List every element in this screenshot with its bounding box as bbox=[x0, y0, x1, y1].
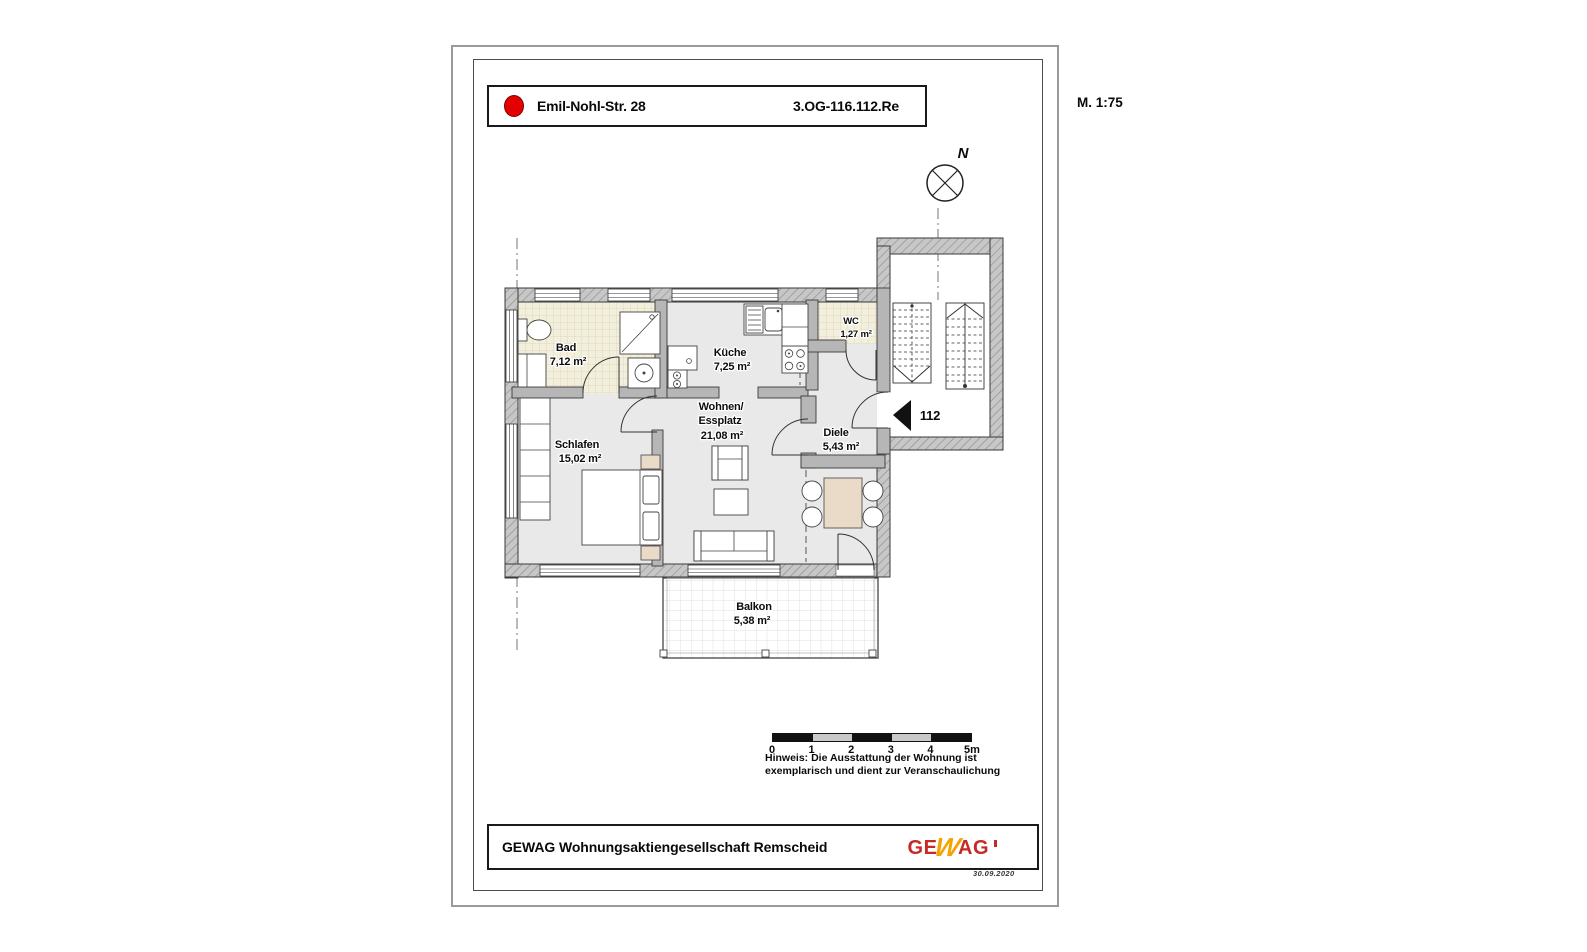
sofa bbox=[694, 531, 774, 561]
wall-apartment-stairwell-b bbox=[877, 428, 890, 454]
kitchen-burners bbox=[668, 370, 687, 388]
window-bottom-wohnen bbox=[688, 565, 780, 576]
balkon-area: 5,38 m² bbox=[734, 615, 771, 627]
diele-area: 5,43 m² bbox=[823, 441, 860, 453]
scale-segment bbox=[773, 734, 813, 741]
street-address: Emil-Nohl-Str. 28 bbox=[537, 98, 646, 114]
window-left-bad bbox=[506, 310, 517, 382]
wall-kueche-bottom-a bbox=[667, 387, 719, 398]
company-name: GEWAG Wohnungsaktiengesellschaft Remsche… bbox=[502, 839, 827, 855]
nightstand bbox=[641, 546, 660, 560]
scale-segment bbox=[892, 734, 932, 741]
stove bbox=[782, 346, 808, 373]
washing-machine bbox=[628, 358, 660, 388]
shower bbox=[620, 312, 660, 354]
window-top-3 bbox=[672, 289, 778, 301]
stairwell-wall-right bbox=[990, 238, 1003, 450]
wohnen-area: 21,08 m² bbox=[701, 430, 744, 442]
bad-label: Bad bbox=[556, 342, 576, 354]
window-top-1 bbox=[535, 289, 580, 301]
title-block: Emil-Nohl-Str. 28 3.OG-116.112.Re bbox=[487, 85, 927, 127]
diele-label: Diele bbox=[823, 427, 848, 439]
stairwell-wall-top bbox=[877, 238, 1003, 254]
bathroom-sink bbox=[518, 354, 546, 387]
logo-text-ag: AG bbox=[958, 837, 989, 859]
unit-code: 3.OG-116.112.Re bbox=[793, 98, 899, 114]
balcony-door-opening bbox=[836, 565, 874, 576]
kitchen-sink bbox=[744, 304, 784, 335]
stairwell bbox=[893, 303, 984, 389]
scale-bar-track bbox=[772, 733, 972, 742]
stair-flight-right bbox=[946, 303, 984, 389]
schlafen-area: 15,02 m² bbox=[559, 453, 602, 465]
scale-segment bbox=[813, 734, 853, 741]
window-top-2 bbox=[608, 289, 650, 301]
balcony-post bbox=[869, 650, 876, 657]
footer: GEWAG Wohnungsaktiengesellschaft Remsche… bbox=[487, 824, 1039, 870]
floor-plan-sheet: Emil-Nohl-Str. 28 3.OG-116.112.Re M. 1:7… bbox=[0, 0, 1587, 952]
wall-bad-bottom-a bbox=[512, 387, 583, 398]
wall-apartment-stairwell-a bbox=[877, 288, 890, 392]
disclaimer-note: Hinweis: Die Ausstattung der Wohnung ist… bbox=[765, 752, 1000, 778]
wall-diele-bottom bbox=[801, 455, 885, 468]
window-bottom-schlafen bbox=[540, 565, 640, 576]
window-left-schlafen bbox=[506, 424, 517, 518]
north-label: N bbox=[958, 145, 970, 162]
nightstand bbox=[641, 455, 660, 469]
bad-area: 7,12 m² bbox=[550, 356, 587, 368]
apartment-number-label: 112 bbox=[920, 408, 940, 423]
wc-area: 1,27 m² bbox=[840, 329, 871, 340]
double-bed bbox=[582, 470, 662, 545]
toilet bbox=[518, 319, 551, 341]
entrance-arrow-icon bbox=[893, 400, 911, 431]
kitchen-counter bbox=[668, 346, 697, 370]
compass-icon: N bbox=[927, 145, 970, 201]
wall-kueche-bottom-b bbox=[758, 387, 808, 398]
scale-segment bbox=[852, 734, 892, 741]
disclaimer-line-1: Hinweis: Die Ausstattung der Wohnung ist bbox=[765, 752, 1000, 765]
chair bbox=[802, 507, 822, 527]
balcony-post bbox=[660, 650, 667, 657]
chair bbox=[863, 507, 883, 527]
logo-tick-icon bbox=[994, 840, 997, 847]
wall-wc-bottom bbox=[806, 340, 846, 352]
wohnen-label-1: Wohnen/ bbox=[699, 401, 744, 413]
chair bbox=[863, 481, 883, 501]
dining-table bbox=[824, 478, 862, 528]
landing-wall-bottom bbox=[890, 437, 1003, 450]
wohnen-label-2: Essplatz bbox=[698, 415, 742, 427]
date-note: 30.09.2020 bbox=[973, 869, 1015, 878]
disclaimer-line-2: exemplarisch und dient zur Veranschaulic… bbox=[765, 765, 1000, 778]
chair bbox=[802, 481, 822, 501]
entrance-marker: 112 bbox=[893, 400, 940, 431]
gewag-logo: GEWAG bbox=[908, 832, 997, 863]
coffee-table bbox=[714, 489, 748, 515]
red-dot-icon bbox=[504, 95, 524, 117]
entrance-opening bbox=[877, 392, 890, 428]
window-top-4 bbox=[826, 289, 858, 301]
kueche-label: Küche bbox=[714, 347, 747, 359]
armchair bbox=[712, 446, 748, 480]
scale-segment bbox=[931, 734, 971, 741]
kueche-area: 7,25 m² bbox=[714, 361, 751, 373]
kitchen-tall-unit bbox=[782, 304, 808, 346]
stair-flight-left bbox=[893, 303, 931, 383]
balcony-post bbox=[762, 650, 769, 657]
wardrobe bbox=[520, 398, 550, 520]
balkon-label: Balkon bbox=[736, 601, 772, 613]
floor-plan-drawing: 112 N Bad 7,12 m² Küche 7,25 m² WC 1,27 … bbox=[0, 0, 1587, 952]
schlafen-label: Schlafen bbox=[555, 439, 600, 451]
wc-label: WC bbox=[843, 316, 859, 327]
